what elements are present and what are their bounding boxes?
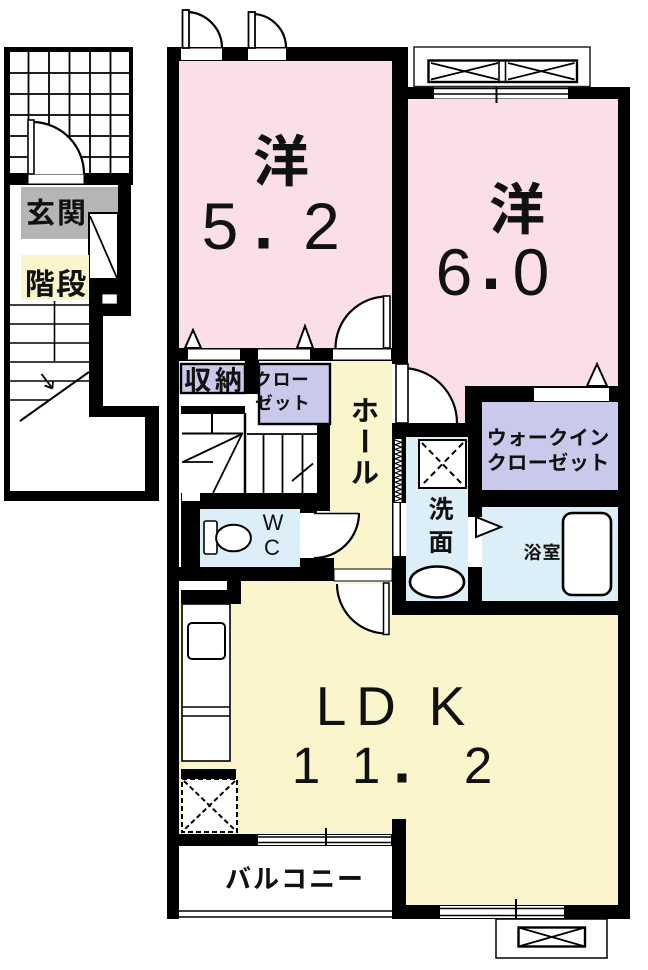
svg-text:L: L [316,675,347,737]
svg-text:2: 2 [303,189,340,263]
svg-text:C: C [264,535,280,560]
svg-text:W: W [263,510,284,535]
svg-text:6: 6 [436,235,473,309]
svg-text:D: D [356,675,396,737]
svg-text:K: K [429,675,466,737]
svg-text:1: 1 [352,737,380,794]
svg-text:5: 5 [202,189,239,263]
svg-text:0: 0 [513,235,550,309]
svg-text:1: 1 [292,737,320,794]
svg-text:2: 2 [464,737,492,794]
